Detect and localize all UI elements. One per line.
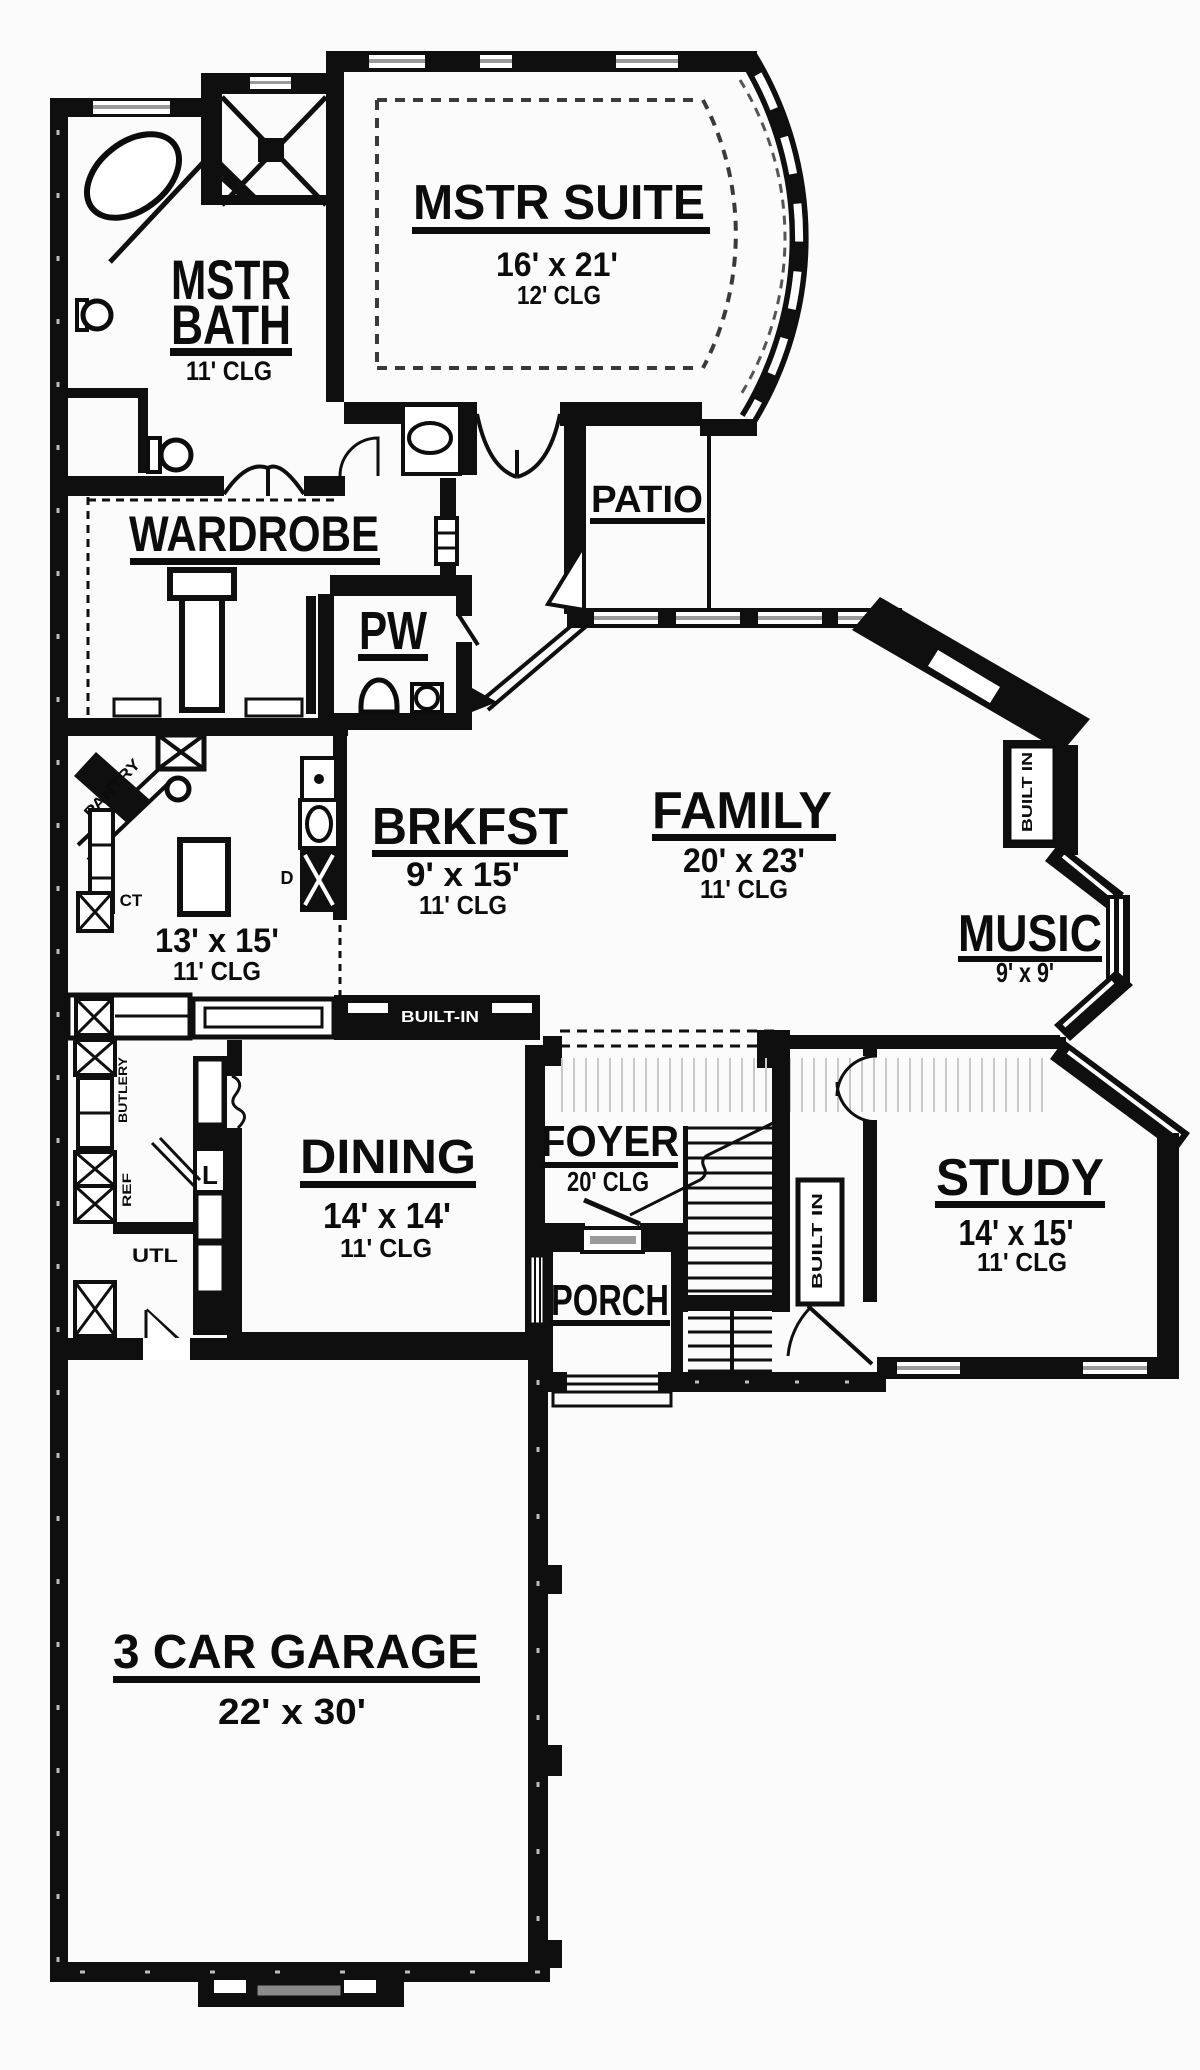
svg-text:16' x 21': 16' x 21' bbox=[496, 246, 618, 284]
svg-text:11' CLG: 11' CLG bbox=[700, 874, 788, 904]
svg-text:3 CAR GARAGE: 3 CAR GARAGE bbox=[113, 1626, 479, 1679]
svg-text:MSTR SUITE: MSTR SUITE bbox=[413, 176, 705, 230]
svg-text:D: D bbox=[281, 868, 294, 888]
svg-text:BRKFST: BRKFST bbox=[372, 798, 568, 856]
svg-text:11' CLG: 11' CLG bbox=[340, 1233, 432, 1263]
svg-text:PORCH: PORCH bbox=[551, 1276, 669, 1325]
svg-text:CT: CT bbox=[120, 891, 143, 910]
svg-text:PATIO: PATIO bbox=[591, 479, 703, 521]
svg-text:BATH: BATH bbox=[171, 293, 291, 356]
svg-text:22' x 30': 22' x 30' bbox=[218, 1691, 366, 1732]
svg-text:PW: PW bbox=[359, 601, 427, 661]
svg-text:20' CLG: 20' CLG bbox=[567, 1166, 649, 1197]
svg-text:14' x 14': 14' x 14' bbox=[323, 1195, 451, 1236]
svg-text:11' CLG: 11' CLG bbox=[977, 1247, 1067, 1277]
svg-text:FOYER: FOYER bbox=[541, 1117, 679, 1166]
svg-text:FAMILY: FAMILY bbox=[652, 782, 832, 840]
svg-text:L: L bbox=[202, 1160, 218, 1190]
svg-text:12' CLG: 12' CLG bbox=[517, 280, 601, 310]
svg-text:BUILT IN: BUILT IN bbox=[1019, 752, 1036, 832]
svg-text:REF: REF bbox=[120, 1173, 134, 1207]
svg-text:BUTLERY: BUTLERY bbox=[116, 1057, 130, 1123]
svg-text:11' CLG: 11' CLG bbox=[186, 356, 272, 386]
svg-text:WARDROBE: WARDROBE bbox=[129, 506, 379, 562]
svg-text:9' x 9': 9' x 9' bbox=[996, 957, 1054, 988]
svg-text:BUILT IN: BUILT IN bbox=[809, 1193, 826, 1289]
svg-text:13' x 15': 13' x 15' bbox=[155, 922, 279, 960]
svg-text:UTL: UTL bbox=[132, 1246, 178, 1267]
svg-text:11' CLG: 11' CLG bbox=[419, 890, 507, 920]
svg-text:9' x 15': 9' x 15' bbox=[406, 856, 520, 894]
svg-text:STUDY: STUDY bbox=[936, 1149, 1104, 1207]
svg-text:11' CLG: 11' CLG bbox=[173, 956, 261, 986]
svg-text:BUILT-IN: BUILT-IN bbox=[401, 1009, 479, 1026]
svg-text:DINING: DINING bbox=[300, 1131, 476, 1184]
svg-text:MUSIC: MUSIC bbox=[958, 905, 1102, 963]
